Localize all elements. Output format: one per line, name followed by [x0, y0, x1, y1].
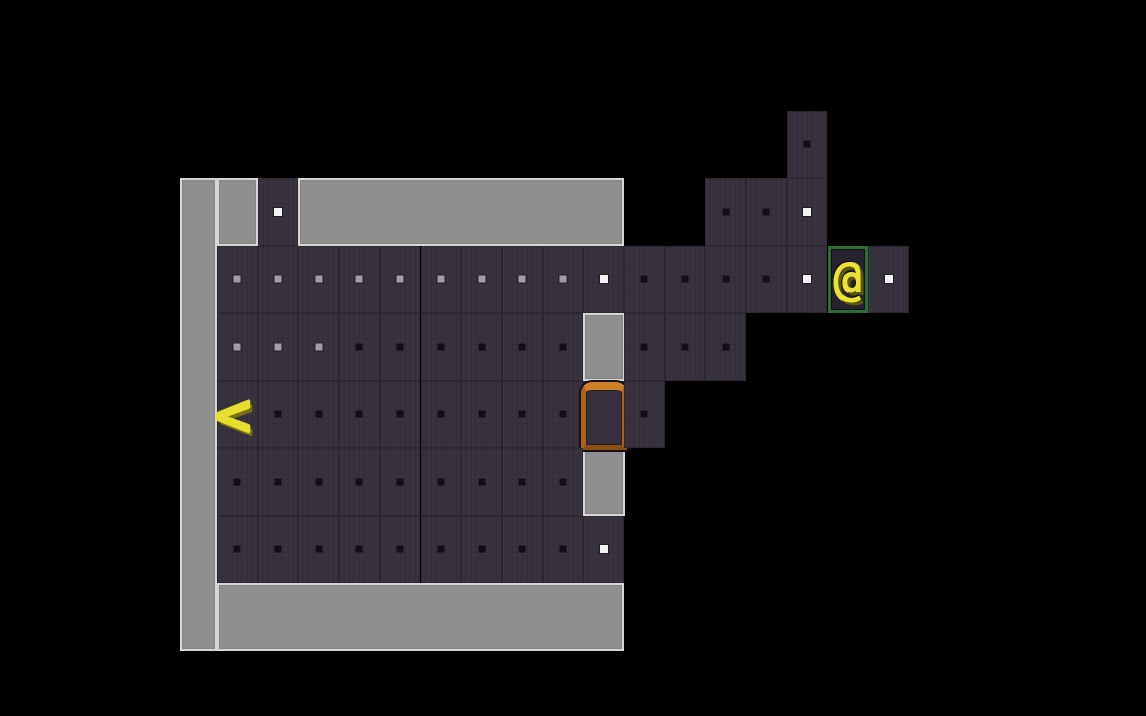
floor-tile[interactable]	[217, 246, 258, 314]
floor-tile[interactable]	[380, 448, 421, 516]
floor-marker-dot	[763, 208, 770, 215]
left-wall	[180, 178, 217, 651]
floor-tile[interactable]	[421, 516, 462, 584]
floor-marker-dot	[600, 545, 608, 553]
floor-marker-dot	[763, 276, 770, 283]
floor-tile[interactable]	[746, 246, 787, 314]
floor-marker-dot	[478, 343, 485, 350]
floor-tile[interactable]	[339, 516, 380, 584]
floor-tile[interactable]	[868, 246, 909, 314]
floor-tile[interactable]	[380, 313, 421, 381]
floor-tile[interactable]	[339, 448, 380, 516]
floor-tile[interactable]	[421, 313, 462, 381]
floor-tile[interactable]	[461, 246, 502, 314]
floor-tile[interactable]	[461, 448, 502, 516]
floor-tile[interactable]	[705, 246, 746, 314]
floor-tile[interactable]	[258, 516, 299, 584]
floor-marker-dot	[600, 275, 608, 283]
floor-marker-dot	[519, 478, 526, 485]
top-wall-left	[217, 178, 258, 246]
floor-tile[interactable]	[258, 246, 299, 314]
floor-tile[interactable]	[665, 246, 706, 314]
floor-marker-dot	[885, 275, 893, 283]
floor-tile[interactable]	[583, 516, 624, 584]
floor-tile[interactable]	[380, 381, 421, 449]
floor-marker-dot	[641, 343, 648, 350]
dungeon-view: @<	[0, 0, 1146, 716]
floor-tile[interactable]	[705, 178, 746, 246]
floor-tile[interactable]	[624, 246, 665, 314]
floor-marker-dot	[275, 478, 282, 485]
floor-tile[interactable]	[787, 111, 828, 179]
floor-marker-dot	[803, 275, 811, 283]
floor-tile[interactable]	[298, 448, 339, 516]
floor-marker-dot	[641, 411, 648, 418]
floor-tile[interactable]	[217, 448, 258, 516]
floor-marker-dot	[804, 141, 811, 148]
floor-marker-dot	[519, 276, 526, 283]
floor-marker-dot	[478, 478, 485, 485]
floor-marker-dot	[315, 546, 322, 553]
floor-marker-dot	[275, 343, 282, 350]
floor-tile[interactable]	[339, 246, 380, 314]
floor-tile[interactable]	[421, 381, 462, 449]
floor-tile[interactable]	[665, 313, 706, 381]
floor-tile[interactable]	[298, 246, 339, 314]
floor-tile[interactable]	[461, 516, 502, 584]
floor-marker-dot	[519, 343, 526, 350]
floor-marker-dot	[275, 411, 282, 418]
floor-tile[interactable]	[461, 381, 502, 449]
floor-marker-dot	[519, 411, 526, 418]
floor-tile[interactable]	[339, 381, 380, 449]
floor-marker-dot	[478, 546, 485, 553]
floor-marker-dot	[275, 546, 282, 553]
floor-tile[interactable]	[543, 448, 584, 516]
door-tile[interactable]	[583, 381, 624, 449]
floor-tile[interactable]	[298, 516, 339, 584]
floor-tile[interactable]	[502, 516, 543, 584]
floor-marker-dot	[315, 411, 322, 418]
floor-marker-dot	[356, 276, 363, 283]
right-wall-lower	[583, 448, 625, 516]
floor-tile[interactable]	[258, 448, 299, 516]
floor-marker-dot	[234, 343, 241, 350]
floor-tile[interactable]	[298, 381, 339, 449]
floor-marker-dot	[356, 478, 363, 485]
floor-marker-dot	[397, 478, 404, 485]
floor-marker-dot	[397, 411, 404, 418]
floor-marker-dot	[803, 208, 811, 216]
floor-tile[interactable]	[339, 313, 380, 381]
floor-tile[interactable]	[258, 178, 299, 246]
floor-marker-dot	[519, 546, 526, 553]
floor-tile[interactable]	[380, 246, 421, 314]
floor-tile[interactable]	[624, 381, 665, 449]
floor-marker-dot	[682, 343, 689, 350]
floor-tile[interactable]	[258, 381, 299, 449]
floor-marker-dot	[275, 276, 282, 283]
floor-marker-dot	[478, 411, 485, 418]
floor-tile[interactable]	[298, 313, 339, 381]
floor-marker-dot	[559, 546, 566, 553]
floor-tile[interactable]	[502, 381, 543, 449]
floor-marker-dot	[397, 343, 404, 350]
floor-tile[interactable]	[624, 313, 665, 381]
floor-marker-dot	[437, 343, 444, 350]
floor-tile[interactable]	[217, 313, 258, 381]
floor-tile[interactable]	[421, 246, 462, 314]
floor-tile[interactable]	[421, 448, 462, 516]
floor-tile[interactable]	[502, 448, 543, 516]
bottom-wall	[217, 583, 624, 651]
floor-tile[interactable]	[705, 313, 746, 381]
floor-marker-dot	[682, 276, 689, 283]
floor-marker-dot	[478, 276, 485, 283]
floor-marker-dot	[722, 343, 729, 350]
floor-marker-dot	[356, 343, 363, 350]
floor-marker-dot	[274, 208, 282, 216]
floor-tile[interactable]	[461, 313, 502, 381]
floor-marker-dot	[356, 411, 363, 418]
floor-tile[interactable]	[258, 313, 299, 381]
floor-tile[interactable]	[502, 313, 543, 381]
floor-marker-dot	[437, 478, 444, 485]
floor-marker-dot	[559, 411, 566, 418]
floor-marker-dot	[315, 478, 322, 485]
floor-marker-dot	[722, 208, 729, 215]
floor-marker-dot	[234, 546, 241, 553]
floor-tile[interactable]	[543, 381, 584, 449]
stairs-up-tile[interactable]: <	[217, 381, 258, 449]
player-at-icon: @	[828, 246, 869, 314]
floor-marker-dot	[437, 276, 444, 283]
floor-marker-dot	[397, 546, 404, 553]
floor-marker-dot	[559, 478, 566, 485]
floor-marker-dot	[315, 276, 322, 283]
floor-marker-dot	[437, 411, 444, 418]
floor-tile[interactable]	[583, 246, 624, 314]
floor-marker-dot	[722, 276, 729, 283]
player-tile[interactable]: @	[828, 246, 869, 314]
floor-tile[interactable]	[787, 178, 828, 246]
floor-marker-dot	[437, 546, 444, 553]
floor-tile[interactable]	[787, 246, 828, 314]
floor-tile[interactable]	[543, 246, 584, 314]
floor-marker-dot	[315, 343, 322, 350]
floor-marker-dot	[397, 276, 404, 283]
floor-marker-dot	[356, 546, 363, 553]
floor-marker-dot	[641, 276, 648, 283]
floor-marker-dot	[559, 343, 566, 350]
stairs-up-icon: <	[213, 381, 254, 449]
floor-tile[interactable]	[543, 313, 584, 381]
top-wall-right	[298, 178, 624, 246]
floor-marker-dot	[234, 276, 241, 283]
floor-tile[interactable]	[380, 516, 421, 584]
floor-marker-dot	[234, 478, 241, 485]
floor-tile[interactable]	[746, 178, 787, 246]
right-wall-upper	[583, 313, 625, 381]
floor-tile[interactable]	[502, 246, 543, 314]
floor-tile[interactable]	[543, 516, 584, 584]
floor-tile[interactable]	[217, 516, 258, 584]
floor-marker-dot	[559, 276, 566, 283]
door-open-icon	[581, 382, 627, 451]
